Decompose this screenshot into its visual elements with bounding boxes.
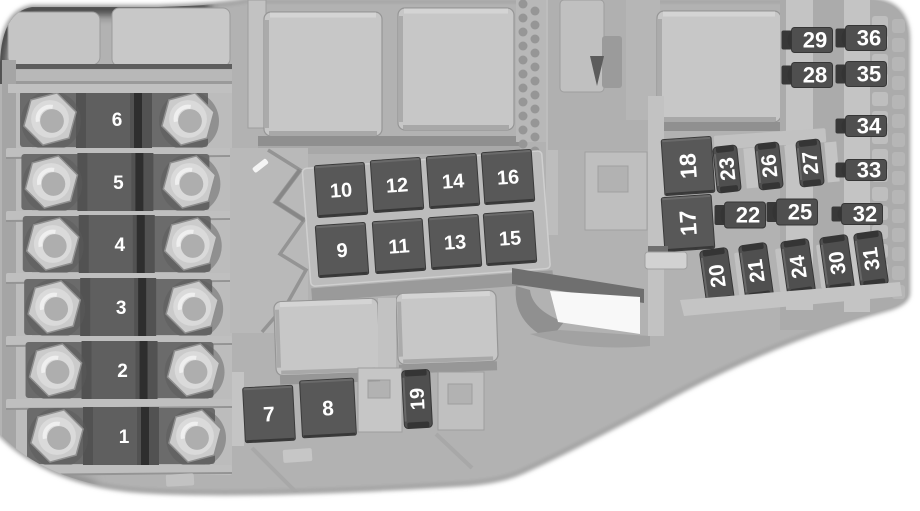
svg-text:1: 1 [119, 427, 130, 448]
svg-text:15: 15 [498, 227, 522, 250]
svg-text:26: 26 [757, 153, 782, 179]
svg-text:22: 22 [736, 203, 760, 228]
svg-text:28: 28 [803, 63, 827, 88]
svg-text:31: 31 [859, 245, 885, 272]
svg-text:9: 9 [336, 240, 349, 263]
svg-text:11: 11 [388, 235, 411, 258]
svg-text:14: 14 [441, 170, 466, 194]
svg-text:21: 21 [744, 257, 770, 284]
svg-text:7: 7 [263, 403, 276, 427]
svg-text:30: 30 [825, 250, 851, 276]
svg-text:23: 23 [715, 156, 740, 182]
svg-text:35: 35 [857, 62, 881, 87]
svg-text:34: 34 [857, 114, 882, 139]
svg-text:36: 36 [857, 26, 881, 51]
svg-text:24: 24 [786, 253, 812, 280]
svg-text:12: 12 [385, 174, 409, 197]
svg-text:3: 3 [116, 298, 127, 319]
svg-text:13: 13 [443, 231, 467, 254]
svg-text:33: 33 [857, 158, 881, 183]
svg-text:4: 4 [114, 235, 125, 256]
svg-text:20: 20 [705, 263, 731, 289]
svg-text:10: 10 [329, 179, 353, 202]
svg-text:17: 17 [674, 209, 702, 236]
svg-text:18: 18 [674, 152, 702, 180]
svg-text:2: 2 [117, 361, 128, 382]
svg-text:32: 32 [853, 202, 877, 227]
svg-text:16: 16 [496, 166, 520, 189]
svg-text:5: 5 [113, 173, 124, 194]
svg-text:29: 29 [803, 28, 827, 53]
svg-text:6: 6 [112, 110, 123, 131]
svg-text:25: 25 [788, 200, 812, 225]
svg-text:27: 27 [798, 150, 823, 176]
svg-text:19: 19 [406, 387, 429, 410]
svg-text:8: 8 [322, 397, 335, 421]
